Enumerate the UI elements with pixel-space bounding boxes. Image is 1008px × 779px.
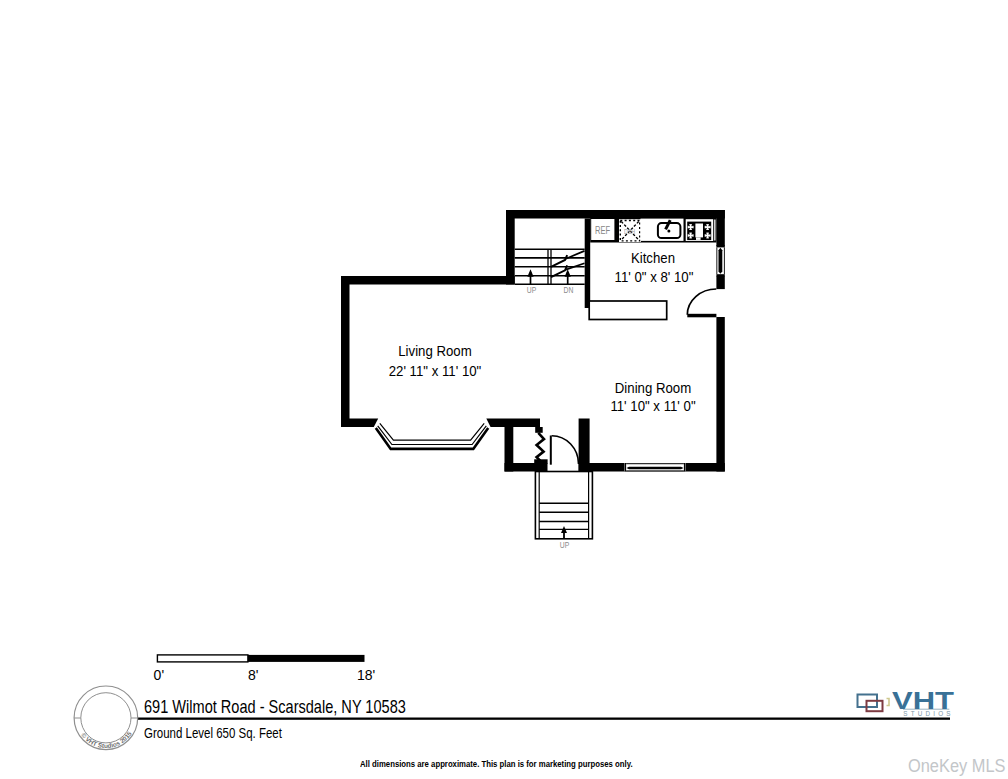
svg-text:© VHT Studios 2015: © VHT Studios 2015 <box>80 730 133 749</box>
